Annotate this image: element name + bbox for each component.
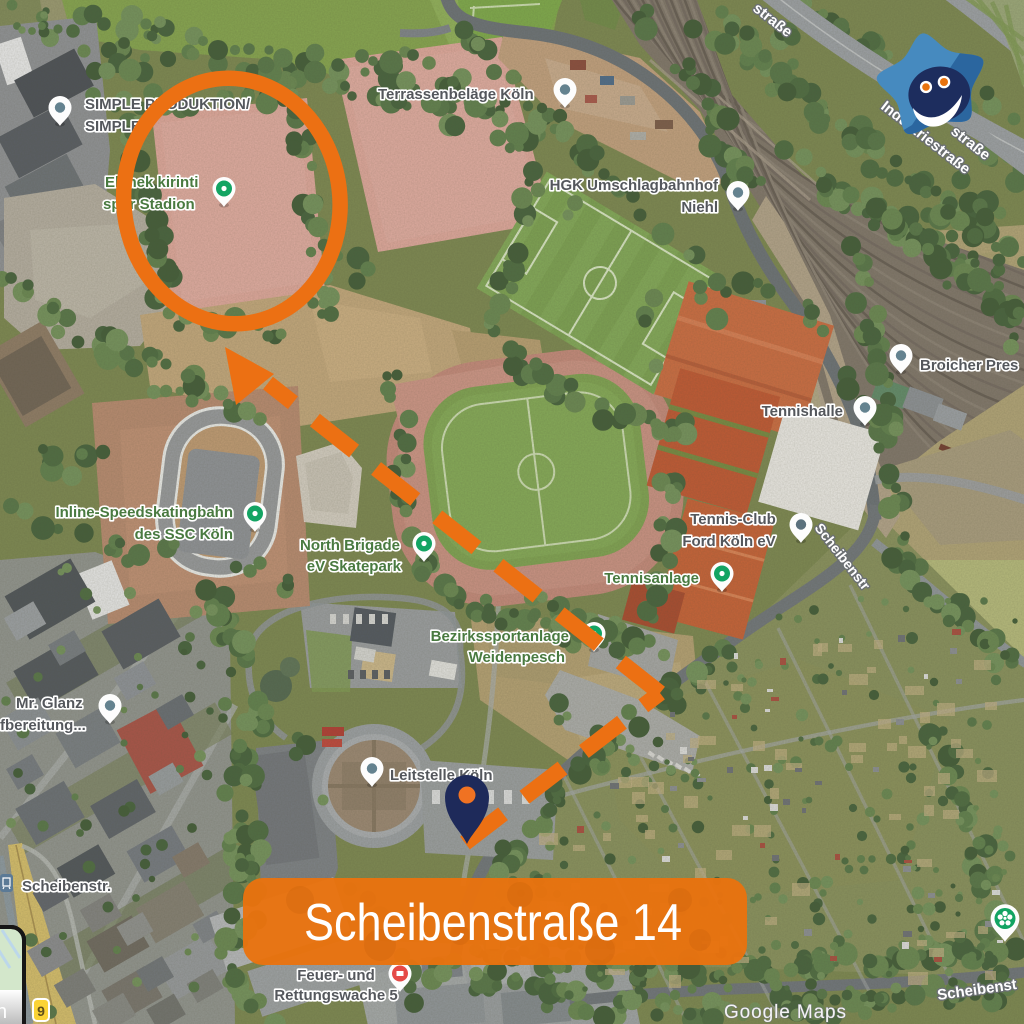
svg-text:Terrassenbeläge Köln: Terrassenbeläge Köln — [378, 86, 534, 103]
svg-text:North Brigade: North Brigade — [300, 537, 400, 554]
svg-text:eV Skatepark: eV Skatepark — [307, 558, 402, 575]
svg-text:Ford Köln eV: Ford Köln eV — [682, 533, 775, 550]
svg-text:Feuer- und: Feuer- und — [297, 967, 375, 984]
svg-text:Tennisanlage: Tennisanlage — [604, 570, 699, 587]
svg-text:Scheibenstr.: Scheibenstr. — [22, 878, 111, 895]
svg-text:fbereitung...: fbereitung... — [0, 717, 86, 734]
svg-text:Weidenpesch: Weidenpesch — [469, 649, 565, 666]
svg-text:Inline-Speedskatingbahn: Inline-Speedskatingbahn — [55, 504, 233, 521]
svg-text:Bezirkssportanlage: Bezirkssportanlage — [431, 628, 569, 645]
svg-text:9: 9 — [37, 1003, 45, 1019]
svg-text:Niehl: Niehl — [681, 199, 718, 216]
svg-text:Google Maps: Google Maps — [724, 1002, 846, 1023]
svg-text:Broicher Pres: Broicher Pres — [920, 357, 1018, 374]
svg-text:des SSC Köln: des SSC Köln — [135, 526, 233, 543]
svg-text:Tennishalle: Tennishalle — [762, 403, 843, 420]
svg-text:n: n — [0, 1001, 7, 1023]
svg-text:Mr. Glanz: Mr. Glanz — [16, 695, 83, 712]
svg-text:Tennis-Club: Tennis-Club — [690, 511, 776, 528]
svg-text:Rettungswache 5: Rettungswache 5 — [274, 987, 397, 1004]
svg-text:Scheibenstraße 14: Scheibenstraße 14 — [304, 894, 682, 952]
svg-text:HGK Umschlagbahnhof: HGK Umschlagbahnhof — [550, 177, 719, 194]
